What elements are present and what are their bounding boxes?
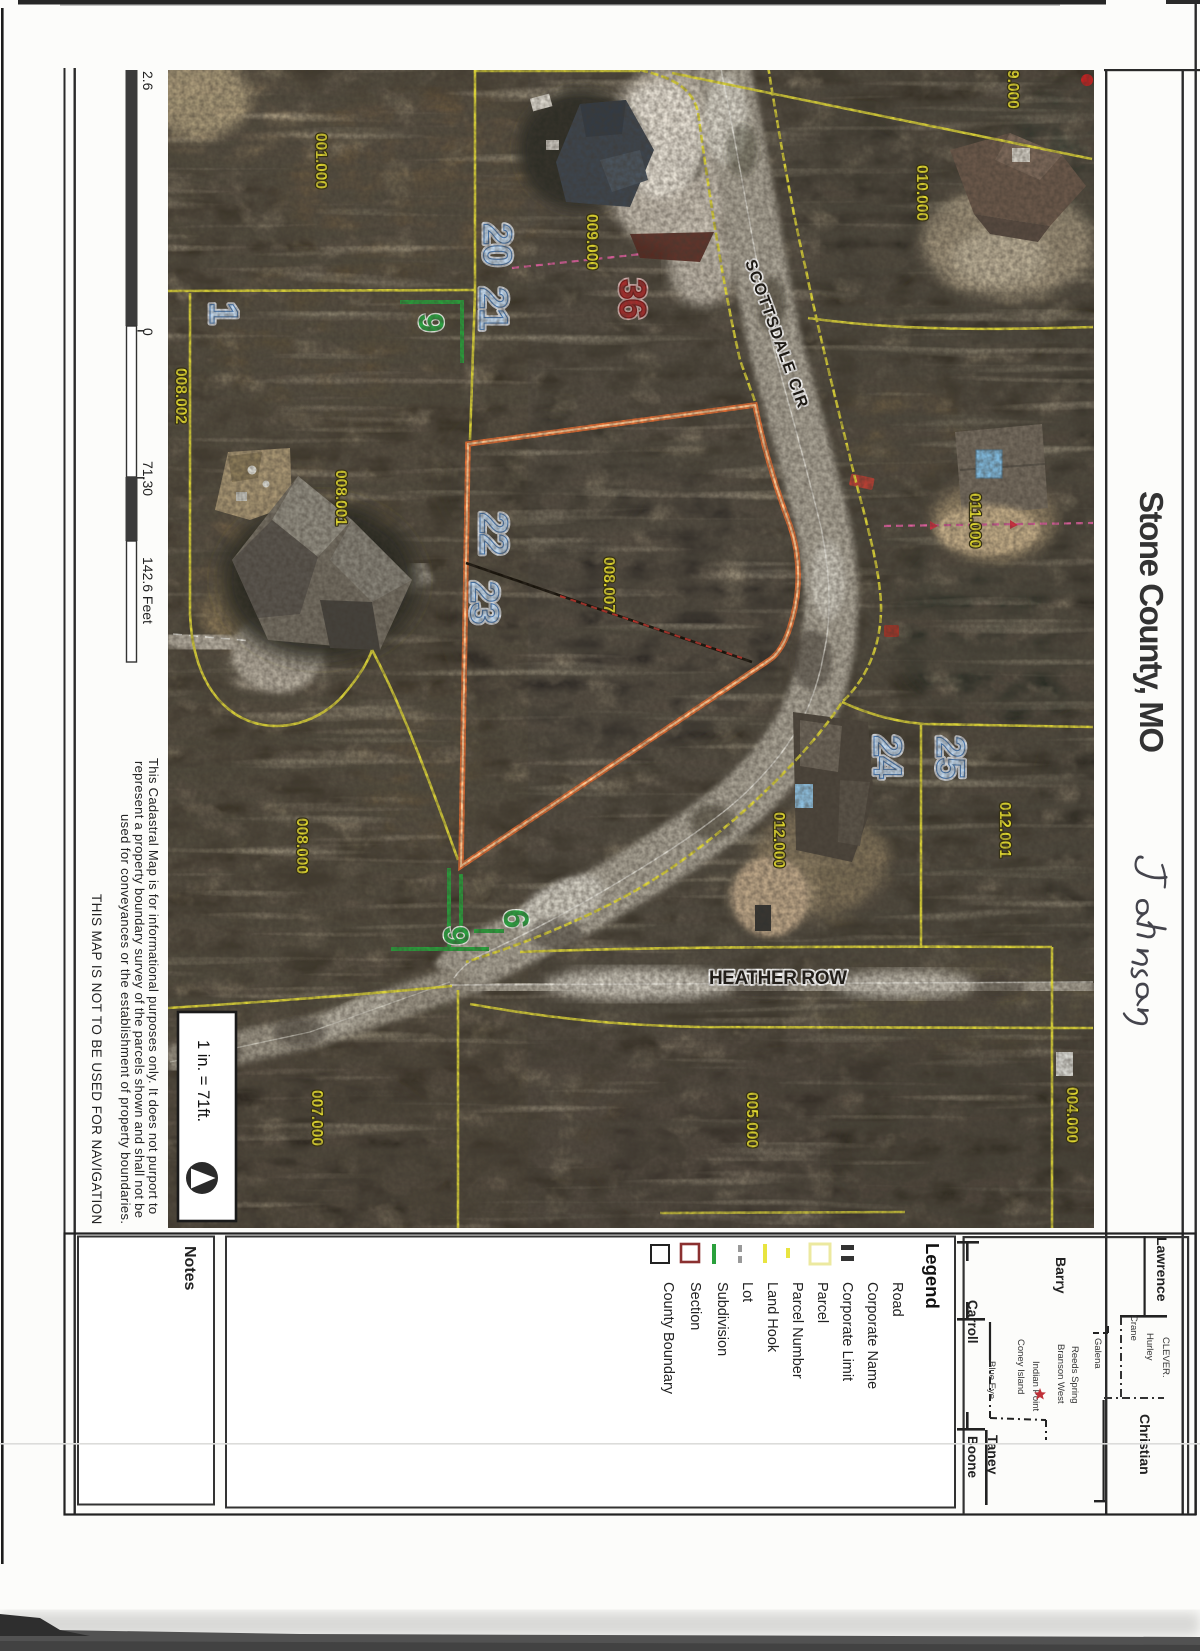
svg-text:Galena: Galena [1092, 1338, 1103, 1369]
svg-text:Subdivision: Subdivision [714, 1282, 730, 1356]
svg-text:Blue Eye: Blue Eye [986, 1361, 997, 1399]
svg-text:Branson West: Branson West [1055, 1344, 1066, 1404]
svg-text:THIS MAP IS NOT TO BE USED FOR: THIS MAP IS NOT TO BE USED FOR NAVIGATIO… [89, 894, 104, 1225]
svg-text:used for conveyances or the es: used for conveyances or the establishmen… [118, 814, 133, 1224]
svg-text:Lot: Lot [739, 1282, 755, 1302]
svg-text:Indian Point: Indian Point [1030, 1361, 1041, 1412]
svg-text:Coney Island: Coney Island [1015, 1339, 1026, 1394]
svg-text:Barry: Barry [1053, 1257, 1069, 1294]
svg-text:0: 0 [140, 328, 156, 336]
svg-text:Stone County, MO: Stone County, MO [1133, 491, 1170, 753]
svg-text:1 in. = 71ft.: 1 in. = 71ft. [194, 1040, 212, 1122]
svg-text:Parcel: Parcel [814, 1282, 830, 1323]
svg-text:Land Hook: Land Hook [764, 1282, 780, 1353]
svg-text:Reeds Spring: Reeds Spring [1069, 1346, 1080, 1404]
svg-text:represent a property boundary: represent a property boundary survey of … [132, 761, 147, 1218]
svg-text:Taney: Taney [985, 1435, 1001, 1475]
svg-text:Carroll: Carroll [965, 1300, 980, 1344]
svg-text:Boone: Boone [965, 1436, 980, 1478]
svg-text:Road: Road [889, 1282, 905, 1317]
svg-text:142.6 Feet: 142.6 Feet [140, 557, 156, 624]
svg-text:This Cadastral Map is for info: This Cadastral Map is for informational … [146, 758, 161, 1214]
svg-text:Legend: Legend [922, 1243, 943, 1309]
svg-text:Section: Section [687, 1282, 703, 1330]
svg-text:Parcel Number: Parcel Number [789, 1282, 805, 1379]
svg-text:Corporate Limit: Corporate Limit [839, 1282, 855, 1381]
svg-text:Notes: Notes [181, 1246, 198, 1291]
svg-text:71.30: 71.30 [140, 461, 156, 496]
svg-text:Corporate Name: Corporate Name [864, 1282, 880, 1389]
svg-text:Crane: Crane [1128, 1315, 1139, 1341]
svg-text:Hurley: Hurley [1144, 1333, 1155, 1361]
svg-text:County Boundary: County Boundary [660, 1282, 676, 1395]
svg-text:CLEVER.: CLEVER. [1160, 1337, 1171, 1378]
svg-text:2.6: 2.6 [140, 71, 156, 91]
svg-text:Lawrence: Lawrence [1154, 1237, 1170, 1302]
